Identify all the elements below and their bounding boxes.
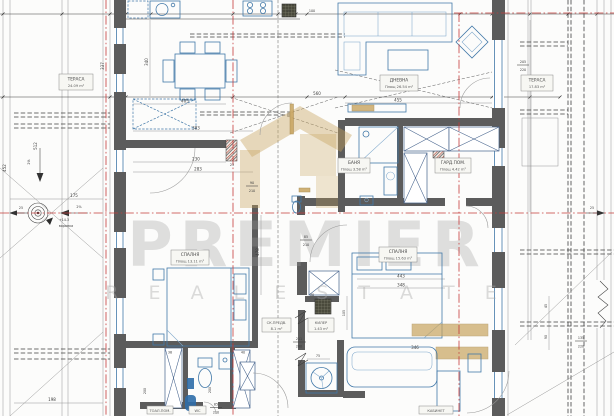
room-label-bedroom-left: СПАЛНЯ Площ 13.11 m² (171, 250, 209, 265)
wardrobe-box (449, 127, 499, 151)
svg-text:8.1 m²: 8.1 m² (271, 327, 283, 331)
svg-text:СПАЛНЯ: СПАЛНЯ (181, 252, 200, 258)
svg-text:БАНЯ: БАНЯ (348, 160, 360, 166)
window (115, 74, 125, 92)
slope-label-2: 2% (27, 159, 31, 164)
dim: 405 (181, 99, 189, 104)
wardrobe-box (404, 153, 427, 203)
svg-text:220: 220 (578, 345, 584, 349)
svg-text:ДНЕВНА: ДНЕВНА (390, 78, 408, 84)
dim: 40 (241, 351, 245, 355)
svg-text:СК.ПРЕДВ.: СК.ПРЕДВ. (267, 321, 287, 325)
window-living-right (493, 40, 504, 108)
dim: 340 (144, 58, 149, 66)
svg-text:1.43 m²: 1.43 m² (314, 327, 329, 331)
drain-label: воронка (59, 224, 73, 228)
door-leaf (299, 188, 310, 192)
svg-text:25: 25 (590, 206, 594, 210)
window (493, 228, 504, 252)
dim: 560 (313, 91, 321, 96)
dim: 105 (342, 310, 346, 316)
svg-text:220: 220 (520, 68, 526, 72)
room-label-wc: WC (189, 406, 206, 414)
level-label: +14.3 (59, 218, 69, 222)
svg-text:85: 85 (304, 235, 308, 239)
logo-body (300, 134, 336, 176)
wc-pipe (187, 378, 194, 389)
dresser (412, 324, 488, 336)
svg-text:90: 90 (250, 181, 254, 185)
room-label-bedroom-right: СПАЛНЯ Площ 15.63 m² (379, 247, 417, 262)
window (115, 368, 125, 388)
dim: 283 (194, 167, 202, 172)
svg-text:СПАЛНЯ: СПАЛНЯ (389, 249, 408, 255)
dim: 25 (287, 9, 291, 13)
dim: 200 (143, 388, 147, 394)
room-label-bath: БАНЯ Площ 3.58 m² (338, 158, 370, 173)
svg-text:WC: WC (194, 409, 201, 413)
room-label-office: КАБИНЕТ (419, 406, 453, 414)
svg-text:Площ 26.54 m²: Площ 26.54 m² (385, 85, 414, 89)
svg-text:Площ 15.63 m²: Площ 15.63 m² (384, 257, 413, 261)
room-label-toilet: ТОАЛ.ПОМ. (147, 406, 173, 414)
window (115, 232, 125, 248)
dim: 337 (100, 62, 105, 70)
dim: 23 (230, 163, 234, 167)
slope-label: 2% (76, 205, 81, 209)
dim: 478 (255, 248, 260, 256)
svg-text:210: 210 (249, 189, 255, 193)
svg-text:211: 211 (296, 337, 302, 341)
dim: 100 (309, 9, 315, 13)
vent-shaft (240, 362, 255, 390)
svg-text:Площ 3.58 m²: Площ 3.58 m² (341, 168, 367, 172)
svg-text:85: 85 (214, 403, 218, 407)
svg-text:Площ 13.11 m²: Площ 13.11 m² (176, 260, 205, 264)
dim: 45 (544, 304, 548, 308)
dim: 200 (208, 387, 212, 393)
svg-text:135: 135 (578, 336, 584, 340)
dresser (436, 347, 488, 359)
dim: 346 (411, 345, 419, 350)
svg-text:210: 210 (303, 243, 309, 247)
window (115, 28, 125, 44)
svg-text:260: 260 (296, 345, 302, 349)
svg-text:КАБИНЕТ: КАБИНЕТ (427, 409, 445, 413)
dim: 230 (192, 157, 200, 162)
dim: 90 (544, 335, 548, 339)
floor-plan-canvas: 2% 2% +14.3 воронка (0, 0, 614, 416)
dim: 175 (70, 193, 78, 198)
dim: 198 (48, 397, 56, 402)
svg-text:210: 210 (213, 411, 219, 415)
dim: 75 (316, 354, 320, 358)
room-label-wardrobe: ГАРД.ПОМ. Площ 4.42 m² (435, 158, 471, 173)
door-leaf (290, 104, 294, 134)
svg-text:КИЛЕР: КИЛЕР (315, 321, 328, 325)
window (115, 150, 125, 172)
svg-text:ТОАЛ.ПОМ.: ТОАЛ.ПОМ. (148, 409, 170, 413)
svg-text:25: 25 (19, 206, 23, 210)
logo-leg (316, 176, 338, 208)
dim: 348 (397, 283, 405, 288)
chimney-hatch-left (226, 140, 237, 161)
svg-text:17.83 m²: 17.83 m² (529, 85, 546, 89)
dim: 452 (2, 164, 7, 172)
svg-text:ГАРД.ПОМ.: ГАРД.ПОМ. (441, 160, 466, 166)
dim: 383 (192, 126, 200, 131)
svg-text:ТЕРАСА: ТЕРАСА (528, 78, 546, 84)
room-label-terrace-right: ТЕРАСА 17.83 m² (521, 75, 553, 91)
dim: 443 (397, 274, 405, 279)
dim: 512 (33, 142, 38, 150)
dim: 38 (168, 351, 172, 355)
wardrobe-box (404, 127, 449, 151)
room-label-vestibule: СК.ПРЕДВ. 8.1 m² (262, 318, 291, 332)
room-label-terrace-left: ТЕРАСА 24.09 m² (59, 74, 93, 90)
logo-column (240, 150, 260, 208)
svg-text:205: 205 (520, 60, 526, 64)
room-label-closet: КИЛЕР 1.43 m² (308, 318, 334, 332)
dim: 455 (394, 98, 402, 103)
watermark-tagline: R E A L E S T A T E (105, 282, 508, 304)
dim: 30 (310, 293, 314, 297)
vent-shaft (165, 348, 182, 408)
svg-text:Площ 4.42 m²: Площ 4.42 m² (440, 168, 466, 172)
svg-text:ТЕРАСА: ТЕРАСА (67, 77, 85, 83)
room-label-living: ДНЕВНА Площ 26.54 m² (380, 75, 418, 91)
svg-text:24.09 m²: 24.09 m² (68, 84, 85, 88)
